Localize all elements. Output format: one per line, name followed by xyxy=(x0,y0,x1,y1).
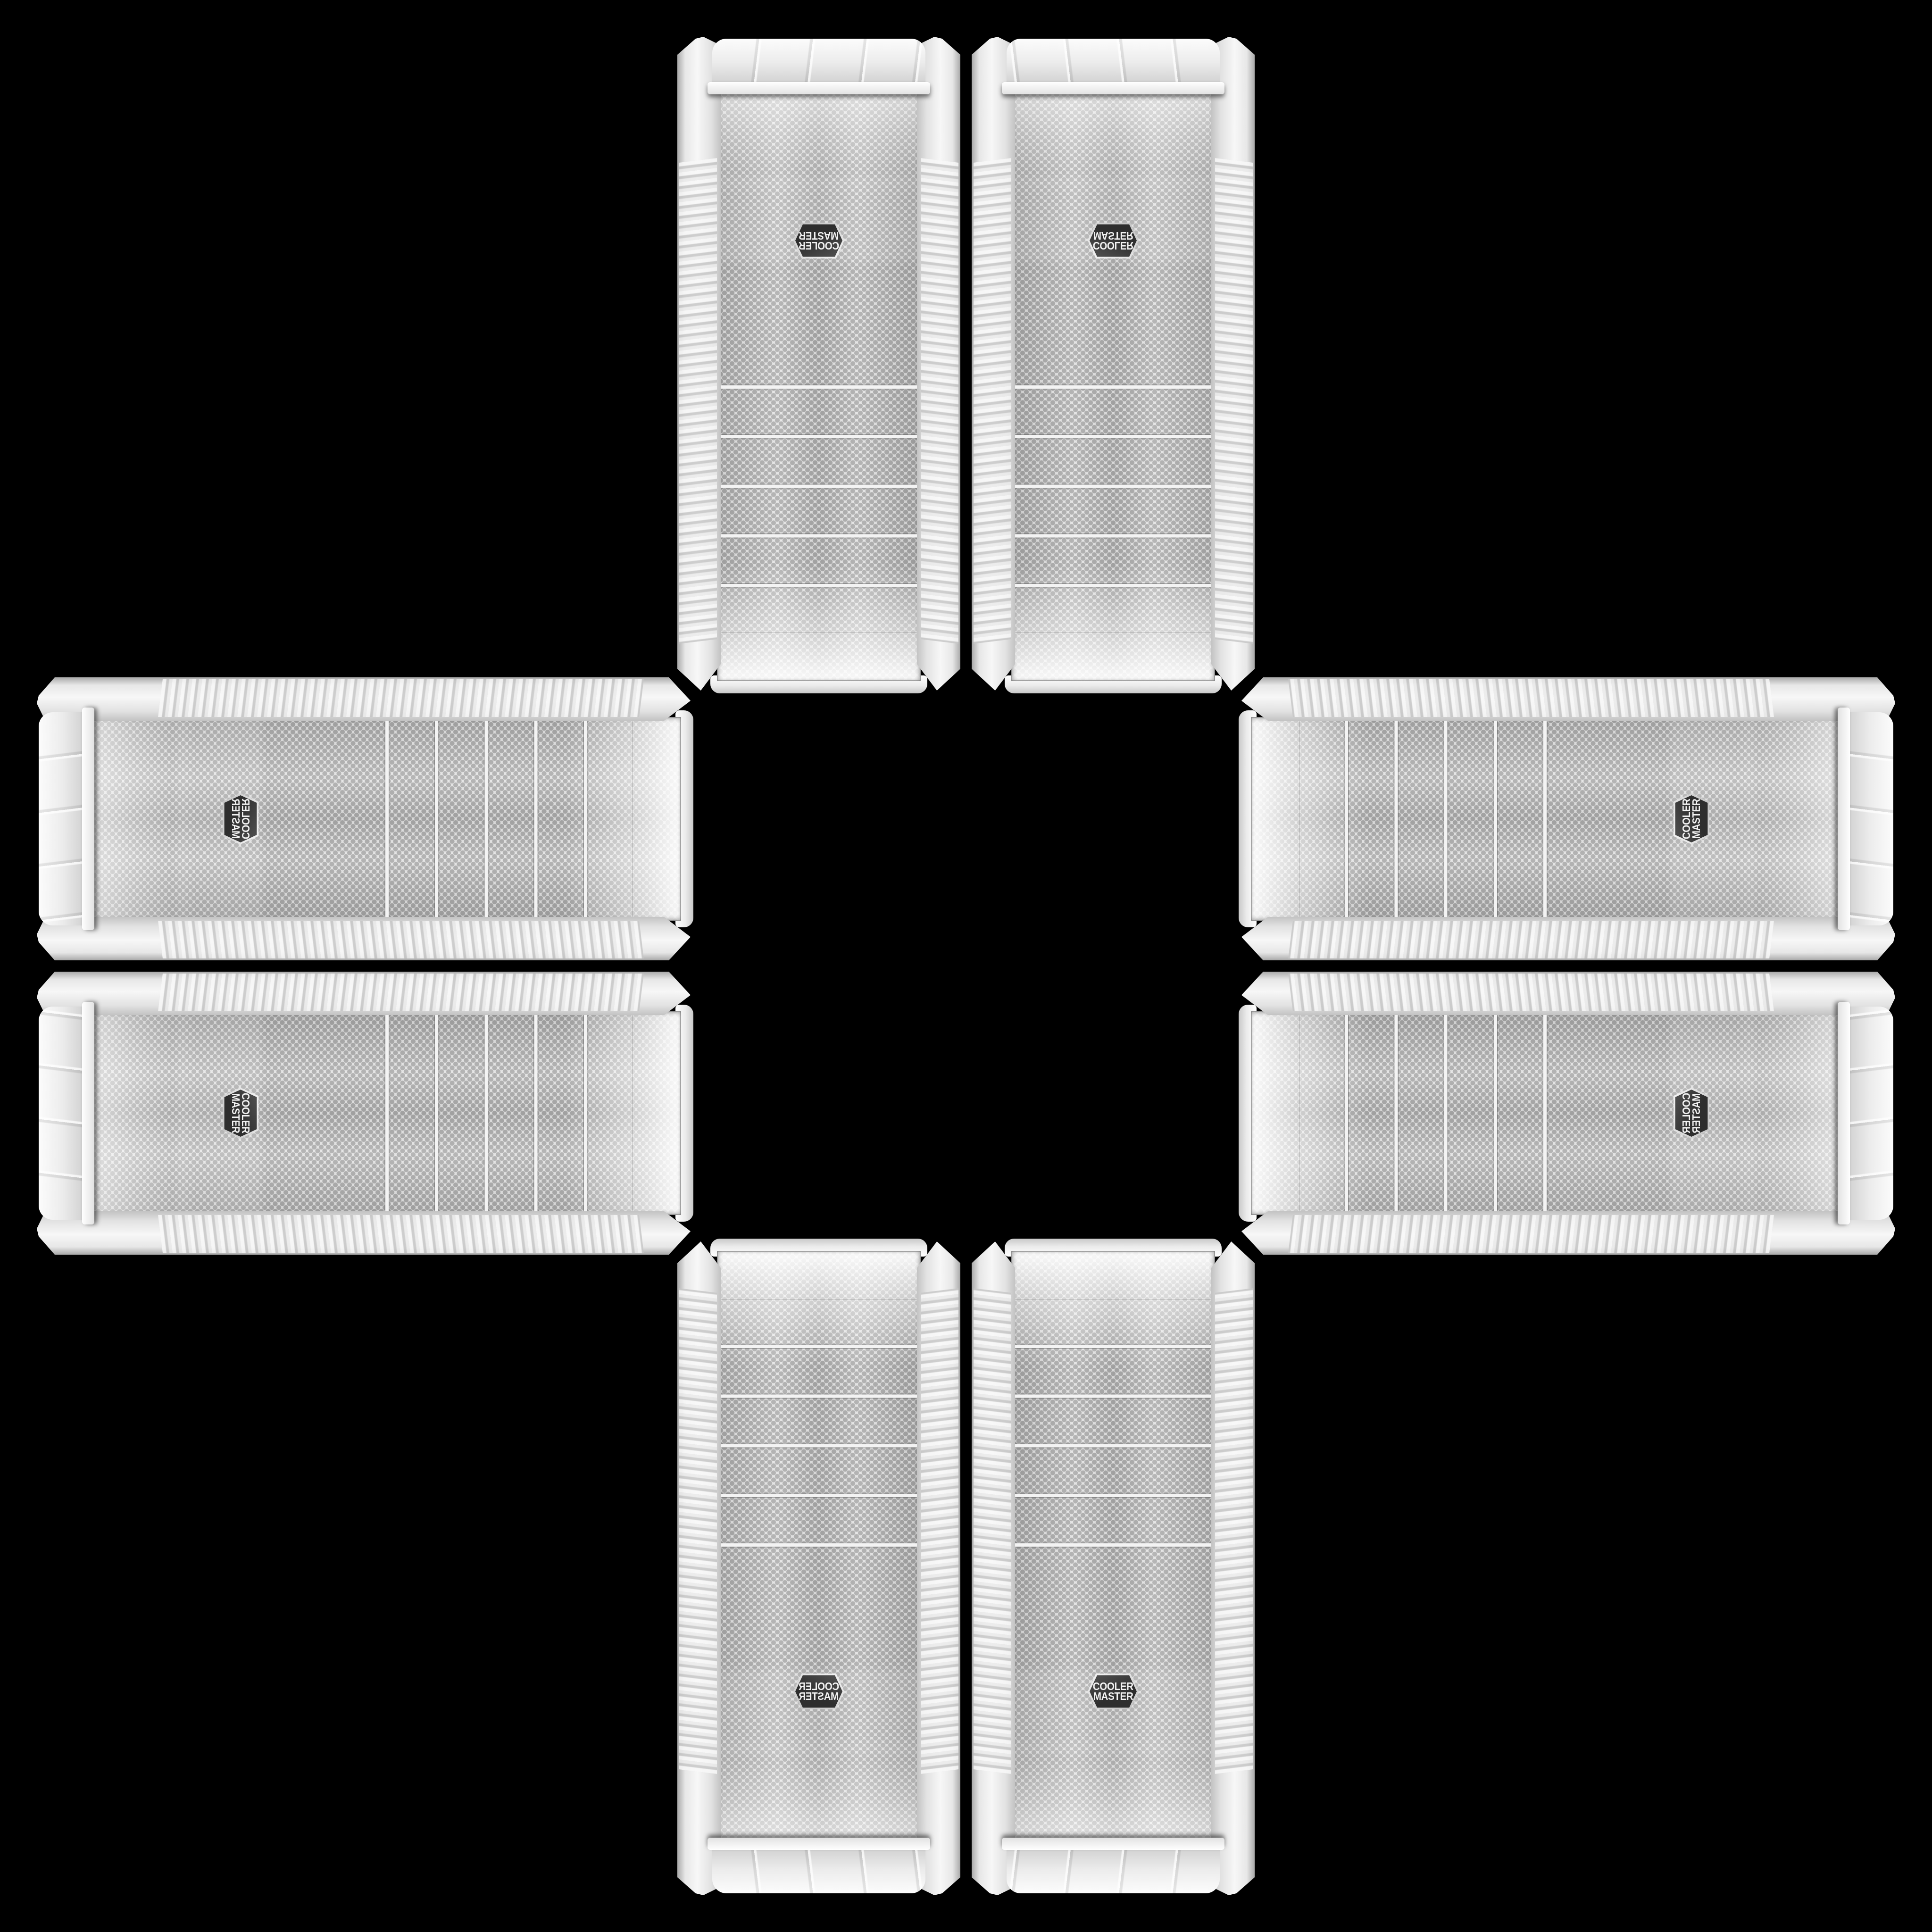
badge-text-line2: MASTER xyxy=(799,231,839,241)
case-end-cap xyxy=(39,712,86,925)
case-bottom-right: COOLER MASTER xyxy=(972,1239,1255,1895)
case-side-rail-right xyxy=(917,37,960,691)
case-side-rail-right xyxy=(37,972,691,1015)
product-collage-scene: COOLER MASTER COOLER MASTER xyxy=(0,0,1932,1932)
case-side-rail-right xyxy=(37,917,691,960)
badge-text-line2: MASTER xyxy=(1691,1093,1701,1133)
badge-face: COOLER MASTER xyxy=(1090,222,1137,259)
case-top-left: COOLER MASTER xyxy=(677,37,960,693)
badge-text-line2: MASTER xyxy=(231,1093,241,1133)
rail-grip-ribs xyxy=(158,921,644,958)
case-end-cap xyxy=(1846,1007,1893,1220)
rail-grip-ribs xyxy=(679,158,717,644)
badge-text-line1: COOLER xyxy=(241,799,250,839)
cooler-master-badge: COOLER MASTER xyxy=(220,1088,261,1139)
case-end-cap xyxy=(1846,712,1893,925)
case-side-rail-right xyxy=(1241,972,1895,1015)
case-side-rail-left xyxy=(37,677,691,721)
rail-grip-ribs xyxy=(921,158,958,644)
rail-grip-ribs xyxy=(1288,974,1774,1011)
cooler-master-badge: COOLER MASTER xyxy=(220,793,261,844)
case-drive-bay-covers xyxy=(1299,1012,1548,1214)
case-drive-bay-covers xyxy=(384,1012,633,1214)
cooler-master-badge: COOLER MASTER xyxy=(1088,220,1139,261)
case-side-rail-left xyxy=(677,37,721,691)
badge-face: COOLER MASTER xyxy=(1090,1673,1137,1710)
badge-face: COOLER MASTER xyxy=(1673,795,1710,842)
rail-grip-ribs xyxy=(158,679,644,717)
badge-text-line2: MASTER xyxy=(799,1691,839,1701)
badge-face: COOLER MASTER xyxy=(795,1673,842,1710)
case-side-rail-left xyxy=(1211,37,1255,691)
cooler-master-badge: COOLER MASTER xyxy=(1671,793,1712,844)
rail-grip-ribs xyxy=(974,1288,1011,1774)
case-end-cap xyxy=(712,1846,925,1893)
case-side-rail-left xyxy=(1241,1211,1895,1255)
cooler-master-badge: COOLER MASTER xyxy=(1088,1671,1139,1712)
case-right-upper: COOLER MASTER xyxy=(1239,677,1895,960)
rail-grip-ribs xyxy=(974,158,1011,644)
case-left-lower: COOLER MASTER xyxy=(37,972,693,1255)
case-side-rail-left xyxy=(677,1241,721,1895)
badge-face: COOLER MASTER xyxy=(222,795,259,842)
case-right-lower: COOLER MASTER xyxy=(1239,972,1895,1255)
badge-text-line1: COOLER xyxy=(799,241,839,250)
rail-grip-ribs xyxy=(1288,921,1774,958)
pc-case: COOLER MASTER xyxy=(972,37,1255,693)
badge-text-line2: MASTER xyxy=(1093,1691,1133,1701)
badge-text-line2: MASTER xyxy=(1691,799,1701,839)
case-top-right: COOLER MASTER xyxy=(972,37,1255,693)
cooler-master-badge: COOLER MASTER xyxy=(793,1671,844,1712)
pc-case: COOLER MASTER xyxy=(972,1239,1255,1895)
badge-text-line2: MASTER xyxy=(1093,231,1133,241)
case-end-cap xyxy=(1007,39,1220,86)
case-drive-bay-covers xyxy=(718,384,920,633)
case-side-rail-left xyxy=(1211,1241,1255,1895)
rail-grip-ribs xyxy=(921,1288,958,1774)
pc-case: COOLER MASTER xyxy=(1239,972,1895,1255)
rail-grip-ribs xyxy=(158,974,644,1011)
rail-grip-ribs xyxy=(1288,679,1774,717)
rail-grip-ribs xyxy=(1288,1215,1774,1253)
case-side-rail-right xyxy=(972,37,1015,691)
rail-grip-ribs xyxy=(1215,158,1253,644)
case-side-rail-right xyxy=(917,1241,960,1895)
badge-text-line1: COOLER xyxy=(241,1093,250,1133)
pc-case: COOLER MASTER xyxy=(37,972,693,1255)
case-drive-bay-covers xyxy=(718,1299,920,1548)
case-drive-bay-covers xyxy=(1299,718,1548,920)
case-left-upper: COOLER MASTER xyxy=(37,677,693,960)
case-drive-bay-covers xyxy=(1012,384,1214,633)
badge-face: COOLER MASTER xyxy=(222,1090,259,1137)
badge-text-line2: MASTER xyxy=(231,799,241,839)
rail-grip-ribs xyxy=(158,1215,644,1253)
case-drive-bay-covers xyxy=(384,718,633,920)
case-end-cap xyxy=(712,39,925,86)
case-end-cap xyxy=(39,1007,86,1220)
pc-case: COOLER MASTER xyxy=(37,677,693,960)
rail-grip-ribs xyxy=(1215,1288,1253,1774)
case-bottom-left: COOLER MASTER xyxy=(677,1239,960,1895)
cooler-master-badge: COOLER MASTER xyxy=(1671,1088,1712,1139)
cooler-master-badge: COOLER MASTER xyxy=(793,220,844,261)
case-side-rail-right xyxy=(1241,917,1895,960)
case-drive-bay-covers xyxy=(1012,1299,1214,1548)
case-side-rail-left xyxy=(1241,677,1895,721)
badge-face: COOLER MASTER xyxy=(1673,1090,1710,1137)
badge-face: COOLER MASTER xyxy=(795,222,842,259)
case-side-rail-left xyxy=(37,1211,691,1255)
pc-case: COOLER MASTER xyxy=(1239,677,1895,960)
case-side-rail-right xyxy=(972,1241,1015,1895)
case-end-cap xyxy=(1007,1846,1220,1893)
pc-case: COOLER MASTER xyxy=(677,37,960,693)
pc-case: COOLER MASTER xyxy=(677,1239,960,1895)
badge-text-line1: COOLER xyxy=(1093,241,1133,250)
rail-grip-ribs xyxy=(679,1288,717,1774)
